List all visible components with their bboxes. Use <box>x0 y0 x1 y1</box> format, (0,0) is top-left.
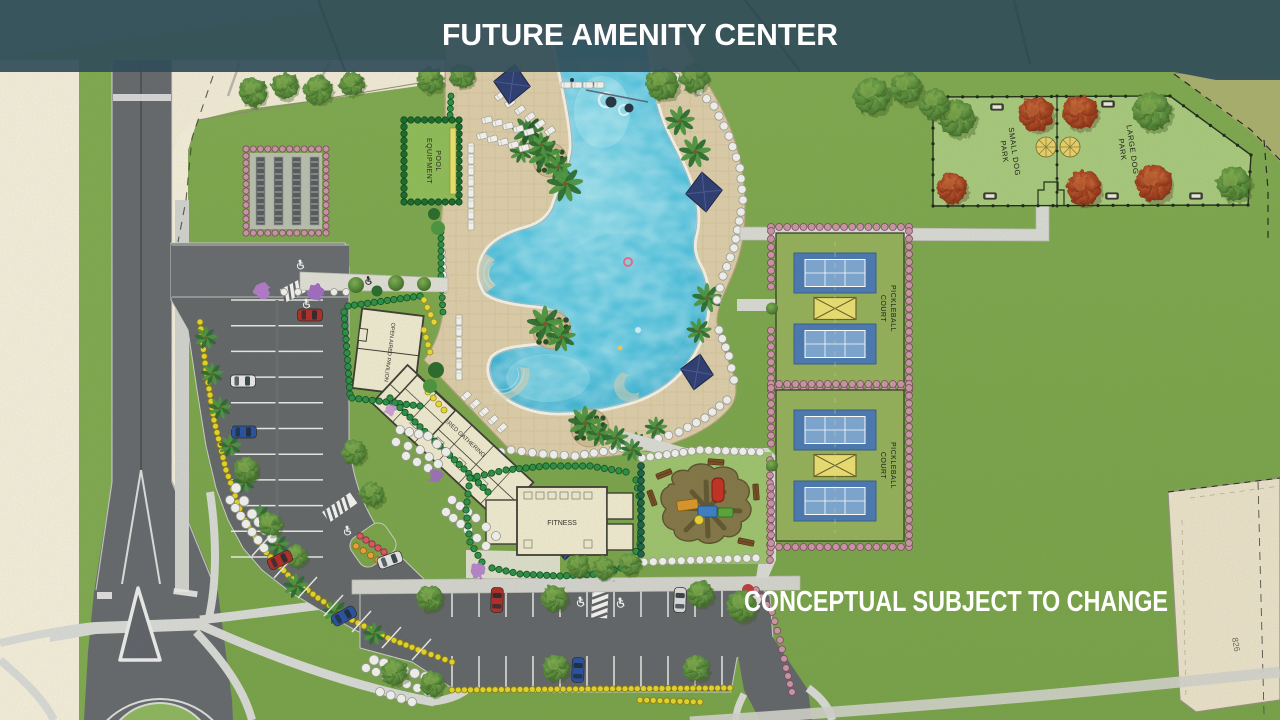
svg-text:CONCEPTUAL SUBJECT TO CHANGE: CONCEPTUAL SUBJECT TO CHANGE <box>744 586 1168 618</box>
svg-text:FUTURE AMENITY CENTER: FUTURE AMENITY CENTER <box>442 17 838 52</box>
